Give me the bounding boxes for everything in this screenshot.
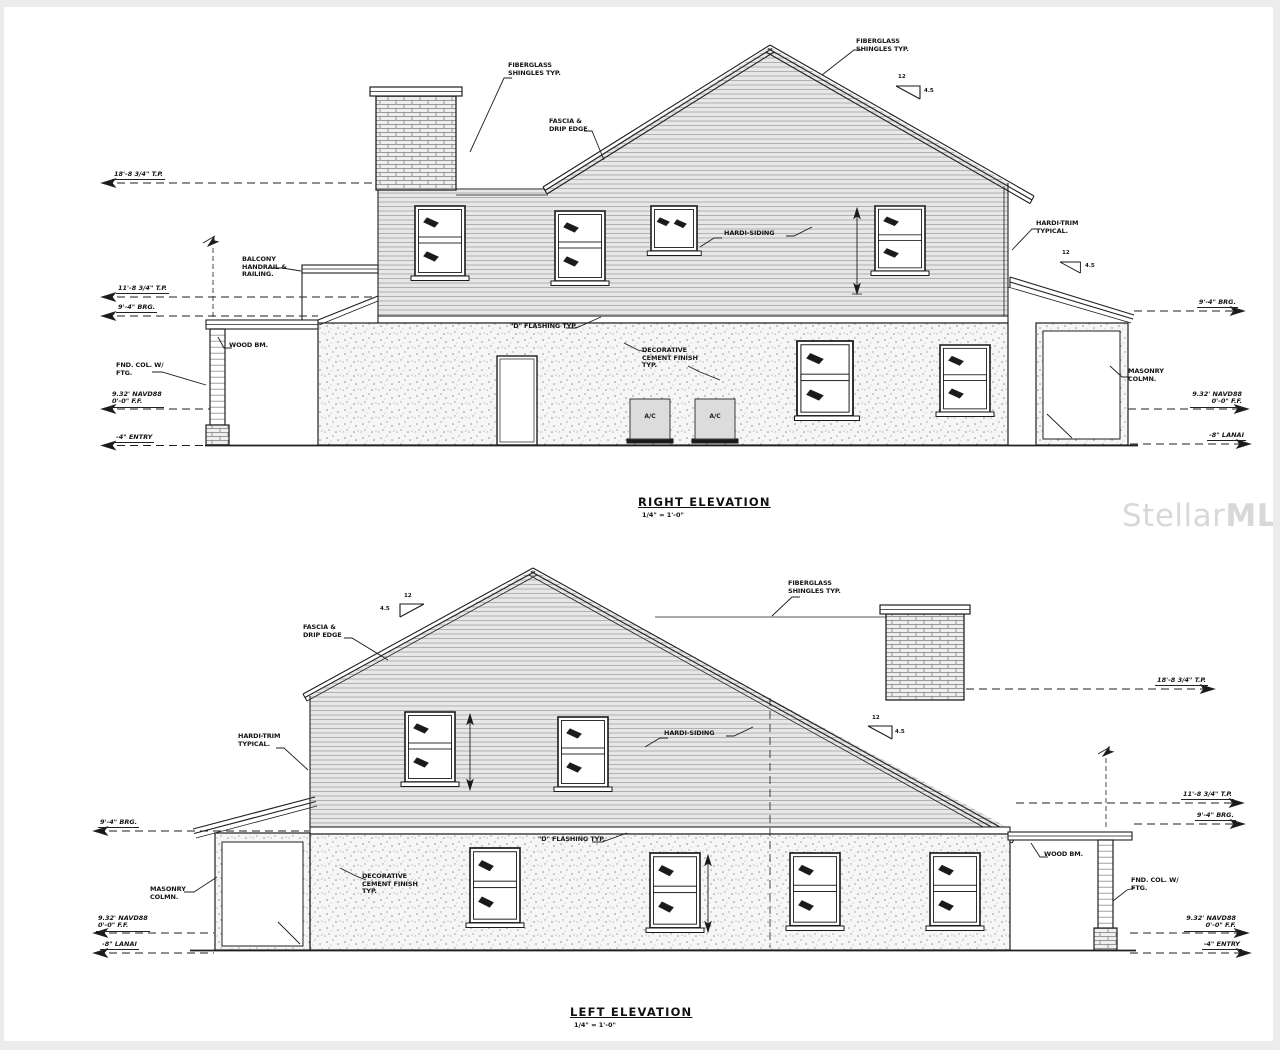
- pitch-run: 12: [404, 593, 412, 599]
- label-wood-beam: WOOD BM.: [229, 342, 268, 350]
- pitch-run: 12: [898, 74, 906, 80]
- pitch-run: 12: [1062, 250, 1070, 256]
- dim-top-plate-11: 11'-8 3/4" T.P.: [1181, 791, 1234, 800]
- dim-top-plate-18: 18'-8 3/4" T.P.: [112, 171, 165, 180]
- label-hardi-siding: HARDI-SIDING: [664, 730, 714, 738]
- pitch-run: 12: [872, 715, 880, 721]
- label-hardi-trim: HARDI-TRIM TYPICAL.: [238, 733, 280, 748]
- pitch-rise: 4.5: [895, 729, 905, 735]
- dim-bearing-right: 9'-4" BRG.: [1197, 299, 1238, 308]
- label-wood-beam: WOOD BM.: [1044, 851, 1083, 859]
- stellar-mls-watermark: StellarMLS: [1122, 498, 1280, 534]
- label-hardi-siding: HARDI-SIDING: [724, 230, 774, 238]
- roof-pitch-marker: [400, 604, 424, 617]
- dim-entry: -4" ENTRY: [1202, 941, 1242, 950]
- balcony-porch: [1008, 747, 1132, 950]
- dim-entry: -4" ENTRY: [114, 434, 154, 443]
- watermark-text-bold: MLS: [1225, 498, 1280, 534]
- dim-lanai: -8" LANAI: [100, 941, 139, 950]
- garage-porch: [193, 797, 317, 950]
- ac-unit: [627, 399, 673, 443]
- dim-top-plate-11: 11'-8 3/4" T.P.: [116, 285, 169, 294]
- label-masonry-column: MASONRY COLMN.: [150, 886, 186, 901]
- right-elevation-title: RIGHT ELEVATION: [638, 495, 771, 509]
- dim-bearing-left: 9'-4" BRG.: [98, 819, 139, 828]
- label-hardi-trim: HARDI-TRIM TYPICAL.: [1036, 220, 1078, 235]
- entry-door: [497, 356, 537, 445]
- label-fnd-col: FND. COL. W/ FTG.: [1131, 877, 1179, 892]
- page-edge-bottom: [0, 1041, 1280, 1050]
- left-elevation-scale: 1/4" = 1'-0": [574, 1021, 616, 1029]
- roof-pitch-marker: [896, 86, 920, 99]
- label-balcony-handrail: BALCONY HANDRAIL & RAILING.: [242, 256, 287, 279]
- elevation-linework: [0, 0, 1280, 1050]
- label-fiberglass-shingles: FIBERGLASS SHINGLES TYP.: [788, 580, 841, 595]
- dim-top-plate-18: 18'-8 3/4" T.P.: [1155, 677, 1208, 686]
- roof-pitch-marker: [1060, 262, 1080, 273]
- roof-pitch-marker: [868, 726, 892, 739]
- label-ac-unit-2: A/C: [695, 413, 735, 420]
- dim-bearing-left: 9'-4" BRG.: [116, 304, 157, 313]
- watermark-text: Stellar: [1122, 498, 1225, 534]
- dim-lanai: -8" LANAI: [1207, 432, 1246, 441]
- label-fiberglass-shingles-left: FIBERGLASS SHINGLES TYP.: [508, 62, 561, 77]
- page-edge-left: [0, 0, 4, 1050]
- dim-finish-floor-left: 9.32' NAVD88 0'-0" F.F.: [96, 915, 150, 932]
- chimney: [370, 87, 462, 190]
- dim-bearing-right: 9'-4" BRG.: [1195, 812, 1236, 821]
- label-d-flashing: "D" FLASHING TYP.: [510, 323, 577, 331]
- chimney: [880, 605, 970, 700]
- page-edge-right: [1273, 0, 1280, 1050]
- label-ac-unit-1: A/C: [630, 413, 670, 420]
- page-edge-top: [0, 0, 1280, 7]
- label-fascia-drip-edge: FASCIA & DRIP EDGE: [549, 118, 588, 133]
- label-fascia-drip-edge: FASCIA & DRIP EDGE: [303, 624, 342, 639]
- right-elevation-scale: 1/4" = 1'-0": [642, 511, 684, 519]
- garage-porch: [1008, 277, 1134, 445]
- label-d-flashing: "D" FLASHING TYP.: [538, 836, 605, 844]
- pitch-rise: 4.5: [1085, 263, 1095, 269]
- ac-unit: [692, 399, 738, 443]
- dim-finish-floor-right: 9.32' NAVD88 0'-0" F.F.: [1190, 391, 1244, 408]
- blueprint-page: FIBERGLASS SHINGLES TYP. FASCIA & DRIP E…: [0, 0, 1280, 1050]
- pitch-rise: 4.5: [380, 606, 390, 612]
- left-elevation-title: LEFT ELEVATION: [570, 1005, 692, 1019]
- label-decorative-cement: DECORATIVE CEMENT FINISH TYP.: [642, 347, 698, 370]
- pitch-rise: 4.5: [924, 88, 934, 94]
- dim-finish-floor-right: 9.32' NAVD88 0'-0" F.F.: [1184, 915, 1238, 932]
- label-fiberglass-shingles-right: FIBERGLASS SHINGLES TYP.: [856, 38, 909, 53]
- label-decorative-cement: DECORATIVE CEMENT FINISH TYP.: [362, 873, 418, 896]
- dim-finish-floor-left: 9.32' NAVD88 0'-0" F.F.: [110, 391, 164, 408]
- left-elevation-drawing: [94, 568, 1250, 957]
- label-fnd-col: FND. COL. W/ FTG.: [116, 362, 164, 377]
- right-elevation-drawing: [102, 45, 1250, 450]
- label-masonry-column: MASONRY COLMN.: [1128, 368, 1164, 383]
